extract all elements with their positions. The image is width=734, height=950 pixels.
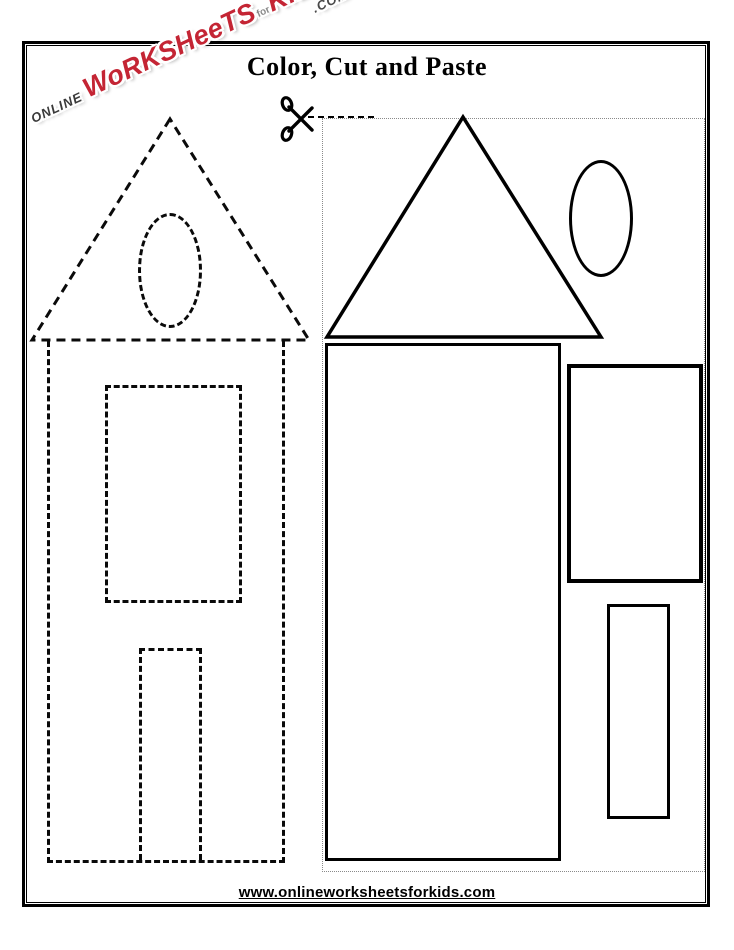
solid-door-rectangle: [607, 604, 670, 819]
solid-window-rectangle: [567, 364, 703, 583]
dashed-window-rectangle: [105, 385, 242, 603]
solid-house-body-rectangle: [325, 343, 561, 861]
solid-oval-window: [569, 160, 633, 277]
logo-com-text: .COM: [310, 0, 351, 16]
worksheet-page: Color, Cut and Paste ONLINE WoRKSHeeTS f…: [0, 0, 734, 950]
dashed-oval-window: [138, 213, 202, 328]
dashed-door-rectangle: [139, 648, 202, 860]
solid-roof-triangle: [323, 112, 605, 342]
footer-url: www.onlineworksheetsforkids.com: [0, 884, 734, 901]
